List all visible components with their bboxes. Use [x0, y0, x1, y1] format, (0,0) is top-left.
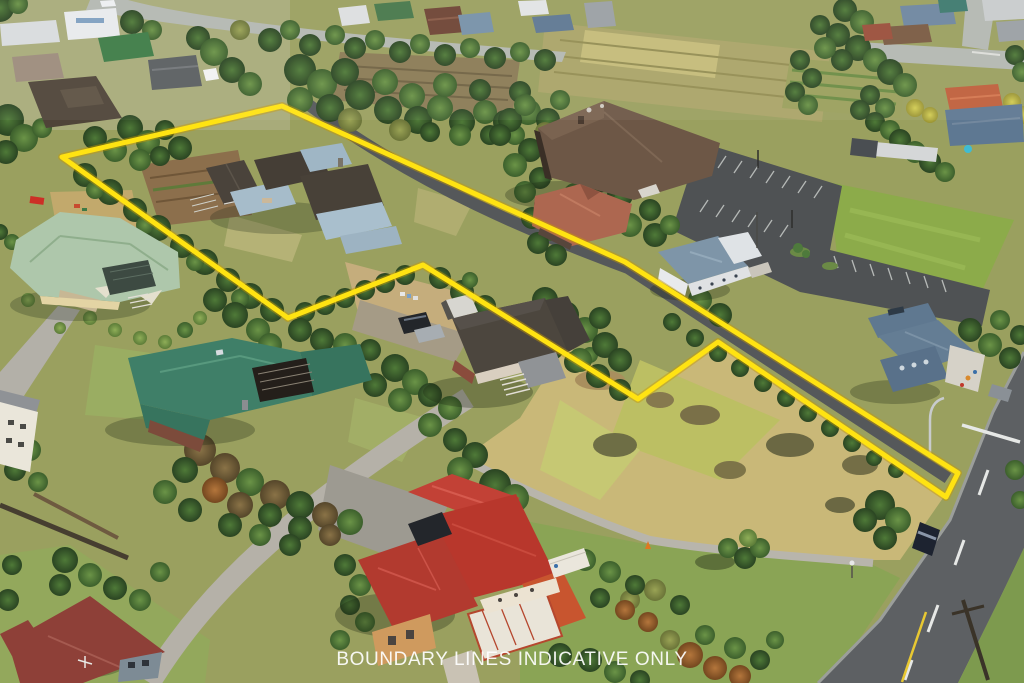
- swimming-pool: [964, 145, 972, 153]
- street-sign: [850, 561, 855, 566]
- aerial-photo-canvas: BOUNDARY LINES INDICATIVE ONLY: [0, 0, 1024, 683]
- aerial-photo: BOUNDARY LINES INDICATIVE ONLY: [0, 0, 1024, 683]
- caption-text: BOUNDARY LINES INDICATIVE ONLY: [336, 649, 687, 670]
- person: [554, 564, 558, 568]
